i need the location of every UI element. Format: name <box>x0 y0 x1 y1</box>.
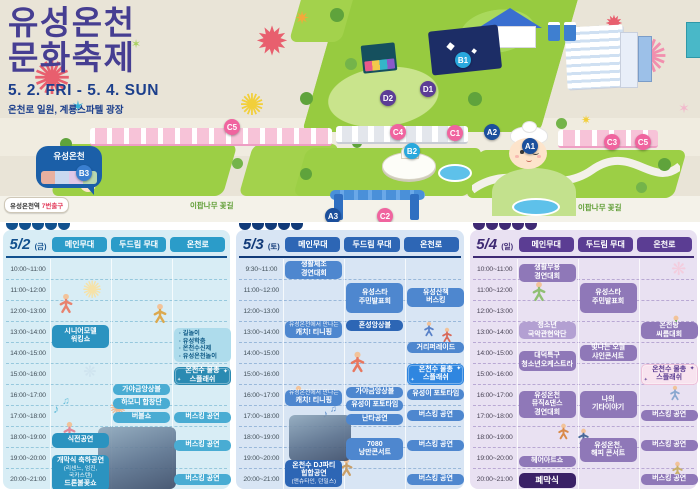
event-chip: 생활체조경연대회 <box>285 261 342 279</box>
schedule-table-5-2: 5/2 (금)메인무대두드림 무대온천로10:00~11:0011:00~12:… <box>3 230 230 489</box>
column-header: 두드림 무대 <box>111 237 166 252</box>
event-chip: 버스킹 공연 <box>641 410 698 421</box>
tree-icon <box>330 8 344 22</box>
scallop-icon <box>6 223 18 230</box>
event-chip: 7080낭만콘서트 <box>346 438 403 460</box>
event-label: 버스킹 공연 <box>185 413 219 422</box>
time-slot: 17:00~18:00 <box>239 406 283 427</box>
schedule-table-5-4: 5/4 (일)메인무대두드림 무대온천로10:00~11:0011:00~12:… <box>470 230 697 489</box>
day-number: 5/2 <box>10 236 31 253</box>
festival-title-line2: 문화축제 <box>8 41 159 76</box>
event-chip: 유성산책버스킹 <box>407 288 464 307</box>
person-doodle-icon <box>531 281 547 302</box>
event-chip: 유성온천뮤직&댄스경연대회 <box>519 391 576 418</box>
event-chip: 하모니 합창단 <box>113 398 170 409</box>
glass-building <box>686 22 700 58</box>
map-marker-c2: C2 <box>377 208 393 222</box>
event-label: 해피 콘서트 <box>591 450 625 459</box>
firework-icon: ✺ <box>239 91 264 121</box>
event-chip: 버스킹 공연 <box>174 440 231 451</box>
map-marker-c4: C4 <box>390 124 406 140</box>
garland-decoration <box>6 223 71 230</box>
table-header: 5/2 (금)메인무대두드림 무대온천로 <box>6 232 227 258</box>
station-name: 유성온천역 <box>10 203 40 210</box>
event-chip: 버스킹 공연 <box>641 440 698 451</box>
event-label: 버블쇼 <box>132 413 151 422</box>
person-doodle-icon <box>423 321 435 337</box>
event-label: 유성스타 <box>362 289 388 298</box>
garland-decoration <box>239 223 304 230</box>
event-chip: · 길놀이· 유성학춤· 온천수신제· 유성온천놀이 <box>174 328 231 363</box>
tree-icon <box>300 92 313 105</box>
event-label: 국악관현악단 <box>528 331 567 340</box>
map-marker-b3: B3 <box>76 165 92 181</box>
time-slot: 12:00~13:00 <box>6 301 50 322</box>
column-divider <box>578 259 579 489</box>
event-label: 버스킹 공연 <box>419 411 453 420</box>
event-label: 가야금앙상블 <box>356 388 395 397</box>
title-block: 유성온천 문화축제 5. 2. FRI - 5. 4. SUN 온천로 일원, … <box>8 6 159 116</box>
tent-strip <box>90 128 332 146</box>
time-slot: 19:00~20:00 <box>239 448 283 469</box>
day-number: 5/4 <box>476 236 497 253</box>
table-row: 10:00~11:00 <box>473 259 694 280</box>
event-label: 식전공연 <box>68 436 94 445</box>
time-slot: 19:00~20:00 <box>6 448 50 469</box>
event-label: 유성온천에서 만나는 <box>289 390 339 397</box>
person-doodle-icon <box>669 385 681 401</box>
table-header: 5/4 (일)메인무대두드림 무대온천로 <box>473 232 694 258</box>
event-label: 폐막식 <box>535 475 558 485</box>
time-slot: 18:00~19:00 <box>6 427 50 448</box>
time-slot: 11:00~12:00 <box>239 280 283 301</box>
event-chip: 폐막식 <box>519 473 576 489</box>
column-divider <box>517 259 518 489</box>
event-label: 경연대회 <box>301 270 327 279</box>
column-divider <box>405 259 406 489</box>
doodle-icon: ✺ <box>82 279 102 303</box>
spa-hotel-wing <box>620 32 638 88</box>
scallop-icon <box>278 223 290 230</box>
event-label: 힙합공연 <box>301 470 327 479</box>
scallop-icon <box>525 223 537 230</box>
scallop-icon <box>486 223 498 230</box>
event-label: 온천탕 <box>659 322 678 331</box>
schedule-tables: 5/2 (금)메인무대두드림 무대온천로10:00~11:0011:00~12:… <box>0 222 700 489</box>
column-header: 온천로 <box>170 237 225 252</box>
map-marker-b2: B2 <box>404 143 420 159</box>
tree-icon <box>300 168 312 180</box>
time-slot: 15:00~16:00 <box>239 364 283 385</box>
event-chip: 유성스타주민발표회 <box>346 283 403 314</box>
garland-decoration <box>473 223 538 230</box>
event-chip: 유성스타주민발표회 <box>580 283 637 314</box>
column-header: 메인무대 <box>52 237 107 252</box>
event-label: 씨름대회 <box>656 331 682 340</box>
schedule-grid: 9:30~11:0011:00~12:0012:00~13:0013:00~14… <box>239 259 460 489</box>
map-marker-c5: C5 <box>635 134 651 150</box>
time-slot: 16:00~17:00 <box>473 385 517 406</box>
time-slot: 18:00~19:00 <box>473 427 517 448</box>
day-of-week: (토) <box>268 242 280 251</box>
event-label: 가야금앙상블 <box>122 386 161 395</box>
event-label: 유성이 포토타임 <box>412 390 459 399</box>
event-chip: 유성이 포토타임 <box>346 400 403 411</box>
event-label: 드론불꽃쇼 <box>64 480 96 489</box>
time-slot: 11:00~12:00 <box>473 280 517 301</box>
event-chip: 나의기타이야기 <box>580 391 637 418</box>
event-label: 혼성앙상블 <box>359 322 391 331</box>
event-stage <box>361 42 398 73</box>
map-marker-a2: A2 <box>484 124 500 140</box>
performer-photo <box>289 415 351 461</box>
event-chip: 가야금앙상블 <box>346 387 403 398</box>
scallop-icon <box>58 223 70 230</box>
table-row: 10:00~11:00 <box>6 259 227 280</box>
event-label: 생활체조 <box>301 261 327 270</box>
event-chip: 온천수 물총스플래쉬✦✦ <box>174 367 231 385</box>
scallop-icon <box>291 223 303 230</box>
event-chip: 난타공연 <box>346 414 403 425</box>
column-header: 두드림 무대 <box>344 237 399 252</box>
event-label: 버스킹 공연 <box>419 475 453 484</box>
time-slot: 14:00~15:00 <box>6 343 50 364</box>
sparkle-icon: ✦ <box>223 369 228 375</box>
time-slot: 20:00~21:00 <box>239 469 283 489</box>
flower-road-label: 이팝나무 꽃길 <box>190 200 233 211</box>
event-chip: 헤어아트쇼 <box>519 456 576 468</box>
event-label: 유성스타 <box>595 289 621 298</box>
event-label: 스플래쉬 <box>190 376 216 385</box>
event-label: 빛나는 오월 <box>591 344 625 353</box>
event-chip: 유성온천에서 만나는캐치! 티니핑 <box>285 390 342 406</box>
event-chip: 생활무용경연대회 <box>519 264 576 282</box>
time-slot: 15:00~16:00 <box>473 364 517 385</box>
person-doodle-icon <box>58 293 74 314</box>
column-header: 메인무대 <box>285 237 340 252</box>
event-label: 7080 <box>367 441 383 450</box>
event-chip: 버스킹 공연 <box>174 412 231 423</box>
scallop-icon <box>32 223 44 230</box>
event-label: · 온천수신제 <box>179 345 211 353</box>
firework-icon: ✹ <box>255 22 289 62</box>
map-marker-d2: D2 <box>380 90 396 106</box>
time-slot: 15:00~16:00 <box>6 364 50 385</box>
tree-icon <box>636 182 647 193</box>
event-label: 온천수 DJ파티 <box>292 462 335 471</box>
time-slot: 14:00~15:00 <box>239 343 283 364</box>
event-chip: 빛나는 오월샤인콘서트 <box>580 345 637 362</box>
scallop-icon <box>512 223 524 230</box>
tree-icon <box>345 58 357 70</box>
map-marker-c1: C1 <box>447 125 463 141</box>
event-label: 버스킹 공연 <box>185 475 219 484</box>
event-label: 시니어모델 <box>64 328 96 337</box>
sparkle-icon: ✦ <box>456 366 461 372</box>
day-number: 5/3 <box>243 236 264 253</box>
person-doodle-icon <box>152 303 168 324</box>
time-slot: 13:00~14:00 <box>6 322 50 343</box>
station-exit-label: 유성온천역 7번출구 <box>4 197 69 213</box>
column-divider <box>283 259 284 489</box>
doodle-icon: ❋ <box>671 260 686 278</box>
event-label: 스플래쉬 <box>423 374 449 383</box>
event-chip: 버스킹 공연 <box>174 474 231 485</box>
event-chip: 온천수 물총스플래쉬✦✦ <box>407 364 464 384</box>
time-slot: 16:00~17:00 <box>6 385 50 406</box>
event-label: 버스킹 공연 <box>652 475 686 484</box>
column-header: 두드림 무대 <box>578 237 633 252</box>
flower-road-label: 이팝나무 꽃길 <box>578 202 621 213</box>
festival-poster: 유성온천 유성온천역 7번출구 이팝나무 꽃길 이팝나무 꽃길 유성온천 문화축… <box>0 0 700 489</box>
tree-icon <box>556 118 567 129</box>
time-slot: 20:00~21:00 <box>473 469 517 489</box>
spa-hotel-tower <box>638 36 652 82</box>
event-chip: 대덕특구청소년오케스트라 <box>519 351 576 371</box>
doodle-icon: ♪ <box>53 403 59 415</box>
event-label: 주민발표회 <box>592 298 624 307</box>
time-slot: 13:00~14:00 <box>239 322 283 343</box>
tree-icon <box>468 92 482 106</box>
day-badge: 5/4 (일) <box>473 236 517 253</box>
time-slot: 16:00~17:00 <box>239 385 283 406</box>
event-chip: 버스킹 공연 <box>407 440 464 451</box>
column-header: 메인무대 <box>519 237 574 252</box>
event-label: (리센느, 엄진, <box>64 466 97 473</box>
festival-dates: 5. 2. FRI - 5. 4. SUN <box>8 82 159 100</box>
time-slot: 10:00~11:00 <box>473 259 517 280</box>
column-header: 온천로 <box>637 237 692 252</box>
toilet-booth <box>564 22 576 41</box>
scallop-icon <box>499 223 511 230</box>
event-chip: 온천탕씨름대회 <box>641 322 698 339</box>
table-row: 9:30~11:00 <box>239 259 460 280</box>
day-of-week: (일) <box>501 242 513 251</box>
time-slot: 17:00~18:00 <box>473 406 517 427</box>
station-exit: 7번출구 <box>42 203 64 210</box>
time-slot: 11:00~12:00 <box>6 280 50 301</box>
event-chip: 유성이 포토타임 <box>407 389 464 400</box>
event-chip: 버스킹 공연 <box>407 410 464 421</box>
event-chip: 시니어모델워킹쇼 <box>52 325 109 348</box>
scallop-icon <box>252 223 264 230</box>
day-badge: 5/2 (금) <box>6 236 50 253</box>
person-doodle-icon <box>349 351 366 373</box>
event-label: 개막식 축하공연 <box>57 457 104 466</box>
time-slot: 10:00~11:00 <box>6 259 50 280</box>
event-chip: 버스킹 공연 <box>407 474 464 485</box>
time-slot: 14:00~15:00 <box>473 343 517 364</box>
table-row: 11:00~12:00 <box>6 280 227 301</box>
event-chip: 청소년국악관현악단 <box>519 322 576 339</box>
person-doodle-icon <box>557 423 570 440</box>
table-row: 12:00~13:00 <box>6 301 227 322</box>
event-chip: 유성온천에서 만나는캐치! 티니핑 <box>285 321 342 338</box>
map-marker-d1: D1 <box>420 81 436 97</box>
festival-venue: 온천로 일원, 계룡스파텔 광장 <box>8 102 159 116</box>
scallop-icon <box>239 223 251 230</box>
column-divider <box>50 259 51 489</box>
event-chip: 거리퍼레이드 <box>407 342 464 353</box>
event-label: 거리퍼레이드 <box>417 344 456 353</box>
sparkle-icon: ✦ <box>410 378 414 383</box>
event-label: 버스킹 공연 <box>419 441 453 450</box>
scallop-icon <box>45 223 57 230</box>
event-label: (앤슈타인, 던밀스) <box>292 479 336 486</box>
schedule-grid: 10:00~11:0011:00~12:0012:00~13:0013:00~1… <box>473 259 694 489</box>
event-label: 샤인콘서트 <box>592 353 624 362</box>
event-label: 온천수 물총 <box>185 367 219 376</box>
event-chip: 개막식 축하공연(리센느, 엄진,국카스텐)드론불꽃쇼 <box>52 455 109 489</box>
day-of-week: (금) <box>35 242 47 251</box>
event-label: 청소년 <box>537 322 556 331</box>
sparkle-icon: ✦ <box>177 378 181 383</box>
event-label: 캐치! 티니핑 <box>296 397 332 406</box>
event-chip: 혼성앙상블 <box>346 320 403 331</box>
tree-icon <box>658 158 671 171</box>
festival-title-line1: 유성온천 <box>8 6 159 41</box>
time-slot: 18:00~19:00 <box>239 427 283 448</box>
map-marker-c3: C3 <box>604 134 620 150</box>
event-label: 경연대회 <box>534 273 560 282</box>
event-label: 버스킹 <box>426 297 445 306</box>
firework-icon: ✶ <box>678 101 690 115</box>
festival-map: 유성온천 유성온천역 7번출구 이팝나무 꽃길 이팝나무 꽃길 유성온천 문화축… <box>0 0 700 222</box>
stage-photo-bubble: 유성온천 <box>36 146 102 188</box>
sparkle-icon: ✦ <box>690 366 695 372</box>
event-label: 청소년오케스트라 <box>521 361 573 370</box>
event-label: 경연대회 <box>534 409 560 418</box>
fountain <box>438 164 472 182</box>
event-chip: 식전공연 <box>52 433 109 448</box>
column-header: 온천로 <box>404 237 459 252</box>
event-label: · 유성학춤 <box>179 338 206 346</box>
event-label: 헤어아트쇼 <box>531 457 563 466</box>
bubble-label: 유성온천 <box>36 150 102 162</box>
scallop-icon <box>265 223 277 230</box>
event-chip: 가야금앙상블 <box>113 384 170 395</box>
event-chip: 버블쇼 <box>113 412 170 423</box>
schedule-grid: 10:00~11:0011:00~12:0012:00~13:0013:00~1… <box>6 259 227 489</box>
event-chip: 유성온천,해피 콘서트 <box>580 438 637 462</box>
map-marker-b1: B1 <box>455 52 471 68</box>
event-label: 하모니 합창단 <box>121 399 162 408</box>
entrance-arch-pillar <box>410 194 419 220</box>
event-chip: 온천수 물총스플래쉬✦✦ <box>641 364 698 384</box>
day-badge: 5/3 (토) <box>239 236 283 253</box>
doodle-icon: ❋ <box>83 365 96 381</box>
scallop-icon <box>19 223 31 230</box>
event-label: 국카스텐) <box>69 473 92 480</box>
event-label: 뮤직&댄스 <box>532 400 563 409</box>
event-label: 유성온천에서 만나는 <box>289 322 339 329</box>
event-chip: 버스킹 공연 <box>641 474 698 485</box>
time-slot: 17:00~18:00 <box>6 406 50 427</box>
event-label: 대덕특구 <box>534 352 560 361</box>
doodle-icon: ♫ <box>330 405 337 414</box>
column-divider <box>639 259 640 489</box>
main-screen <box>428 24 502 75</box>
time-slot: 12:00~13:00 <box>239 301 283 322</box>
event-label: 기타이야기 <box>592 404 624 413</box>
pond <box>512 198 560 216</box>
event-label: 버스킹 공연 <box>185 441 219 450</box>
map-marker-a3: A3 <box>325 208 341 222</box>
time-slot: 12:00~13:00 <box>473 301 517 322</box>
time-slot: 20:00~21:00 <box>6 469 50 489</box>
time-slot: 13:00~14:00 <box>473 322 517 343</box>
event-chip: 온천수 DJ파티힙합공연(앤슈타인, 던밀스) <box>285 460 342 487</box>
event-label: 워킹쇼 <box>71 336 90 345</box>
map-marker-c5: C5 <box>224 119 240 135</box>
event-label: 주민발표회 <box>359 298 391 307</box>
table-header: 5/3 (토)메인무대두드림 무대온천로 <box>239 232 460 258</box>
person-doodle-icon <box>441 327 453 343</box>
tree-icon <box>232 158 243 169</box>
firework-icon: ✷ <box>294 9 309 27</box>
event-label: 캐치! 티니핑 <box>296 329 332 338</box>
performer-photo <box>98 427 176 489</box>
doodle-icon: ♫ <box>62 397 70 407</box>
schedule-table-5-3: 5/3 (토)메인무대두드림 무대온천로9:30~11:0011:00~12:0… <box>236 230 463 489</box>
event-label: 낭만콘서트 <box>359 449 391 458</box>
event-label: 유성온천, <box>594 442 622 451</box>
firework-icon: ✷ <box>581 114 591 126</box>
toilet-booth <box>548 22 560 41</box>
event-label: · 유성온천놀이 <box>179 353 217 361</box>
event-label: 버스킹 공연 <box>652 441 686 450</box>
time-slot: 9:30~11:00 <box>239 259 283 280</box>
event-label: 난타공연 <box>362 415 388 424</box>
event-label: · 길놀이 <box>179 330 200 338</box>
event-label: 생활무용 <box>534 264 560 273</box>
event-label: 버스킹 공연 <box>652 411 686 420</box>
time-slot: 19:00~20:00 <box>473 448 517 469</box>
map-marker-a1: A1 <box>522 138 538 154</box>
event-label: 유성이 포토타임 <box>351 401 398 410</box>
event-label: 유성온천 <box>534 392 560 401</box>
scallop-icon <box>473 223 485 230</box>
sparkle-icon: ✦ <box>644 378 648 383</box>
event-label: 스플래쉬 <box>656 374 682 383</box>
